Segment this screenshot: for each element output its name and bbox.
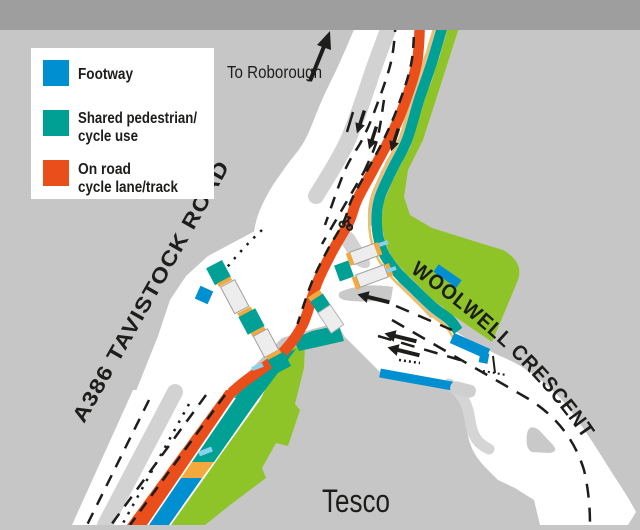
svg-text:Footway: Footway [78, 66, 133, 83]
svg-text:On road: On road [78, 161, 131, 178]
svg-text:To Roborough: To Roborough [227, 62, 322, 82]
svg-text:cycle lane/track: cycle lane/track [78, 179, 178, 196]
svg-text:Shared pedestrian/: Shared pedestrian/ [78, 110, 198, 127]
svg-text:Tesco: Tesco [322, 483, 390, 519]
svg-text:cycle use: cycle use [78, 128, 138, 145]
